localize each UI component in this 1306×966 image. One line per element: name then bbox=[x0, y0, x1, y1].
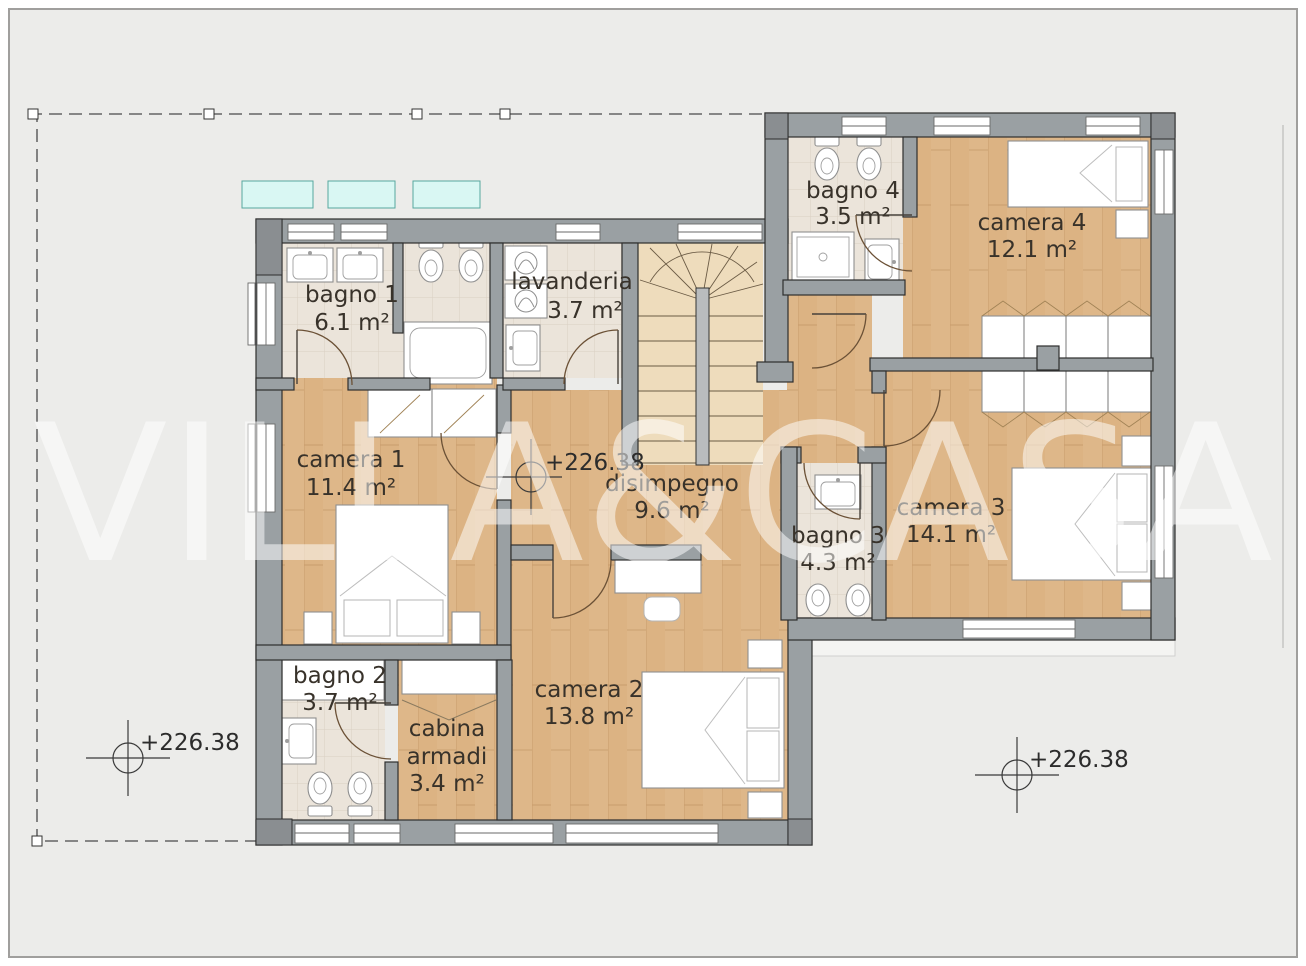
room-area-lavanderia: 3.7 m² bbox=[547, 298, 623, 324]
room-area-bagno2: 3.7 m² bbox=[302, 690, 378, 716]
window bbox=[842, 117, 886, 135]
terrace-strip bbox=[812, 640, 1175, 656]
nightstand bbox=[452, 612, 480, 644]
room-label-lavanderia: lavanderia bbox=[511, 269, 632, 295]
window bbox=[556, 224, 600, 240]
window bbox=[248, 283, 275, 345]
pillow bbox=[747, 731, 779, 781]
window bbox=[678, 224, 762, 240]
elevation-value: +226.38 bbox=[1029, 747, 1129, 773]
nightstand bbox=[748, 792, 782, 818]
room-area-cabina: 3.4 m² bbox=[409, 771, 485, 797]
pillow bbox=[397, 600, 443, 636]
window bbox=[341, 224, 387, 240]
room-area-camera2: 13.8 m² bbox=[544, 704, 634, 730]
floor-plan-page: bagno 1 6.1 m² lavanderia 3.7 m² bagno 4… bbox=[0, 0, 1306, 966]
room-label-bagno1: bagno 1 bbox=[305, 282, 399, 308]
pillow bbox=[747, 678, 779, 728]
floor-plan-canvas: bagno 1 6.1 m² lavanderia 3.7 m² bagno 4… bbox=[0, 0, 1306, 966]
window bbox=[455, 824, 553, 843]
skylight-3 bbox=[413, 181, 480, 208]
shower-icon bbox=[792, 232, 854, 282]
nightstand bbox=[748, 640, 782, 668]
skylight-2 bbox=[328, 181, 395, 208]
room-area-camera4: 12.1 m² bbox=[987, 237, 1077, 263]
nightstand bbox=[1116, 210, 1148, 238]
nightstand bbox=[304, 612, 332, 644]
window bbox=[288, 224, 334, 240]
skylights bbox=[242, 181, 480, 208]
room-label-cabina-line2: armadi bbox=[407, 744, 488, 770]
wardrobe bbox=[982, 316, 1152, 360]
pillow bbox=[1116, 147, 1142, 201]
room-area-bagno1: 6.1 m² bbox=[314, 310, 390, 336]
room-label-bagno4: bagno 4 bbox=[806, 178, 900, 204]
window bbox=[566, 824, 718, 843]
elevation-value: +226.38 bbox=[140, 730, 240, 756]
window bbox=[1086, 117, 1140, 135]
skylight-1 bbox=[242, 181, 313, 208]
window bbox=[934, 117, 990, 135]
bathtub-icon bbox=[404, 322, 492, 384]
window bbox=[963, 620, 1075, 638]
closet-shelf bbox=[402, 660, 496, 694]
room-label-bagno2: bagno 2 bbox=[293, 663, 387, 689]
room-label-camera4: camera 4 bbox=[978, 210, 1087, 236]
window bbox=[1155, 150, 1173, 214]
room-label-cabina-line1: cabina bbox=[409, 716, 485, 742]
window bbox=[354, 824, 400, 843]
window bbox=[295, 824, 349, 843]
pillow bbox=[344, 600, 390, 636]
room-area-bagno4: 3.5 m² bbox=[815, 204, 891, 230]
room-label-camera2: camera 2 bbox=[535, 677, 644, 703]
watermark-text: VILLA&CASA bbox=[33, 384, 1273, 605]
